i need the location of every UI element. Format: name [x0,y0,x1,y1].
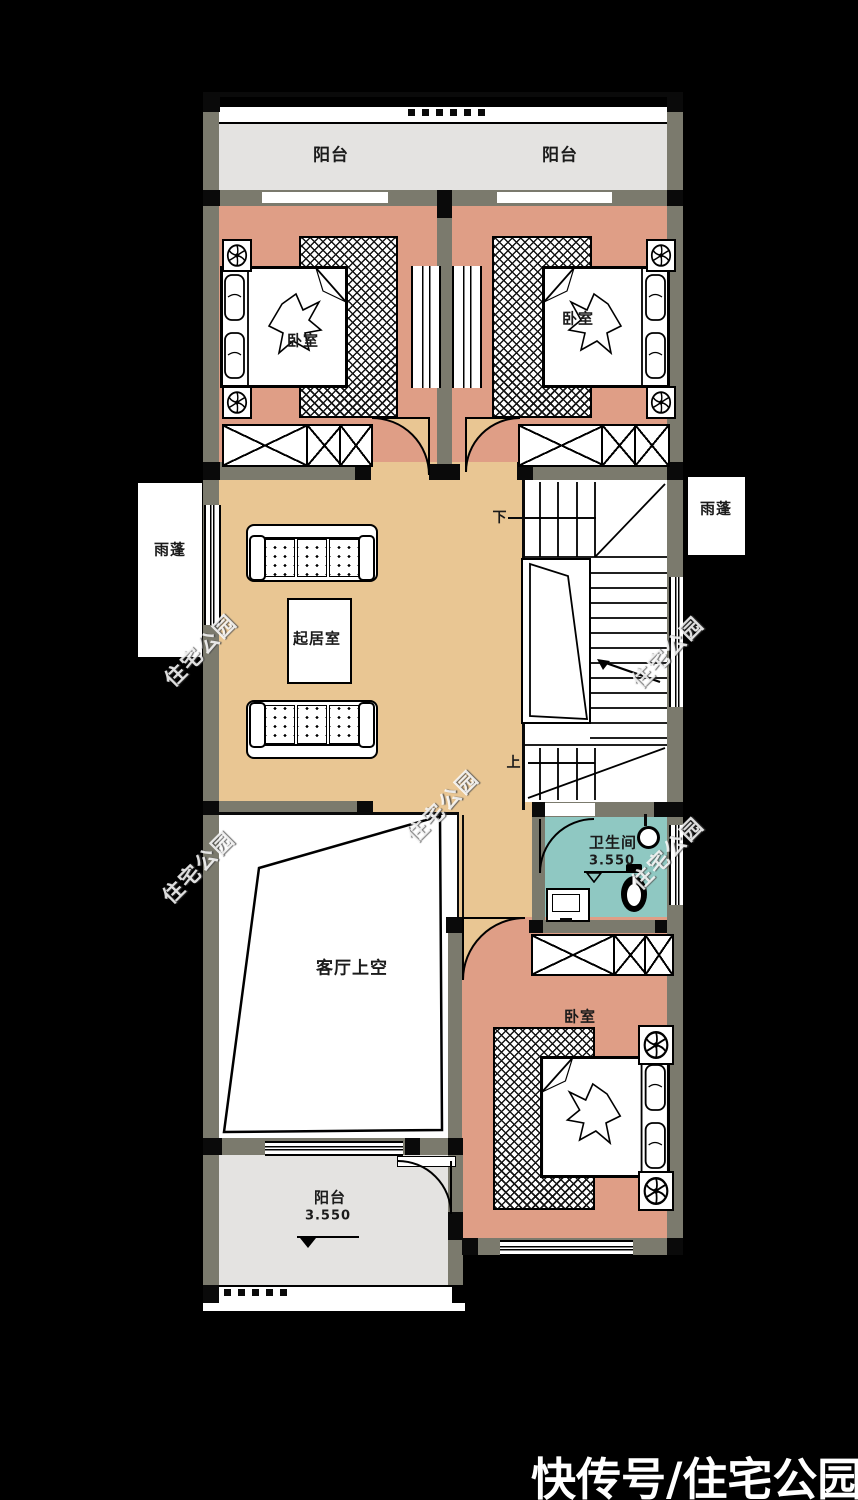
room-label-bedroom-bottom: 卧室 [564,1006,596,1027]
door-arc-balcony-bottom [398,1161,451,1214]
room-label-bedroom-top-left: 卧室 [287,330,319,351]
room-label-balcony-bottom: 阳台 [314,1187,346,1208]
label-stair-up: 上 [507,752,522,772]
floor-plan: 阳台 阳台 卧室 卧室 雨蓬 雨蓬 起居室 下 上 客厅上空 卫生间 3.550… [0,0,858,1500]
level-underline [297,1236,359,1238]
label-canopy-left: 雨蓬 [154,539,186,560]
room-label-bedroom-top-right: 卧室 [562,308,594,329]
room-label-balcony-top-left: 阳台 [313,141,349,166]
label-canopy-right: 雨蓬 [700,498,732,519]
door-arc-bedroom-top-left [372,418,429,475]
label-balcony-bottom-level: 3.550 [305,1209,351,1224]
label-bathroom-level: 3.550 [589,854,635,869]
room-label-bathroom: 卫生间 [589,832,637,853]
room-label-balcony-top-right: 阳台 [542,141,578,166]
room-label-living-void: 客厅上空 [316,954,388,979]
door-arc-bedroom-top-right [466,418,520,472]
label-stair-down: 下 [493,507,508,527]
door-arc-bathroom [540,819,594,873]
plan-line-overlay [0,0,858,1500]
door-arc-bedroom-bottom [463,918,525,980]
room-label-living-room: 起居室 [293,628,341,649]
stair-void-inner [530,564,587,719]
brand-caption: 快传号/住宅公园 [531,1443,858,1500]
